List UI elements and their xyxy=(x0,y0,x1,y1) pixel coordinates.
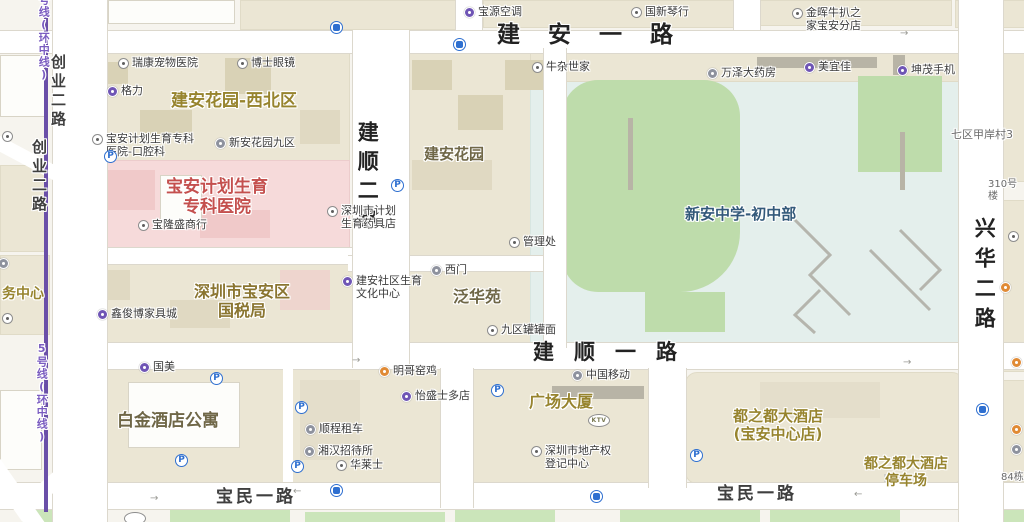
poi-label-yisheng-store[interactable]: 怡盛士多店 xyxy=(415,390,470,403)
city-block xyxy=(240,0,457,30)
green-strip xyxy=(770,508,900,522)
poi-label-jinhui-steak[interactable]: 金晖牛扒之 家宝安分店 xyxy=(806,7,861,33)
poi-label-xinan-huayuan-9[interactable]: 新安花园九区 xyxy=(229,137,295,150)
parking-icon[interactable]: P xyxy=(291,460,304,473)
west-gate-icon[interactable] xyxy=(431,265,442,276)
poi-label-west-gate[interactable]: 西门 xyxy=(445,264,467,277)
baoyuan-kongtiao-icon[interactable] xyxy=(464,7,475,18)
poi-label-ruikang-pet-hospital[interactable]: 瑞康宠物医院 xyxy=(132,57,198,70)
area-label-jianan-huayuan-xibei: 建安花园-西北区 xyxy=(171,91,297,111)
area-label-duzhidu-hotel: 都之都大酒店 (宝安中心店) xyxy=(733,407,823,443)
oneway-arrow: → xyxy=(352,356,360,366)
hualaishi-icon[interactable] xyxy=(336,460,347,471)
street-label-metro-label-top: 号线(环中线) xyxy=(37,0,50,82)
oneway-arrow: ← xyxy=(293,487,301,497)
edge-poi-icon[interactable] xyxy=(2,131,13,142)
dichanquan-center-icon[interactable] xyxy=(531,446,542,457)
ktv-badge: KTV xyxy=(588,414,610,427)
parking-icon[interactable]: P xyxy=(210,372,223,385)
building-shape xyxy=(900,132,905,190)
area-label-jianan-huayuan: 建安花园 xyxy=(424,145,484,163)
guoxin-qinhang-icon[interactable] xyxy=(631,7,642,18)
jiuqu-guanguanmian-icon[interactable] xyxy=(487,325,498,336)
poi-label-baolongsheng[interactable]: 宝隆盛商行 xyxy=(152,219,207,232)
street-label-jianshun-yilu: 建顺一路 xyxy=(533,340,697,365)
area-label-dong-84: 84栋 xyxy=(1001,472,1024,484)
area-label-baijin-hotel: 白金酒店公寓 xyxy=(117,411,219,431)
poi-label-baoyuan-kongtiao[interactable]: 宝源空调 xyxy=(478,6,522,19)
jihua-kouqiang-icon[interactable] xyxy=(92,134,103,145)
poi-label-geli[interactable]: 格力 xyxy=(121,85,143,98)
xianghan-hostel-icon[interactable] xyxy=(304,446,315,457)
geli-icon[interactable] xyxy=(107,86,118,97)
building-shape xyxy=(412,60,452,90)
guomei-icon[interactable] xyxy=(139,362,150,373)
niuza-shijia-icon[interactable] xyxy=(532,62,543,73)
guanlichu-icon[interactable] xyxy=(509,237,520,248)
area-label-fanhuayuan: 泛华苑 xyxy=(453,287,501,306)
parking-icon[interactable]: P xyxy=(175,454,188,467)
map-canvas[interactable]: 建安一路建顺一路宝民一路宝民一路建顺二路兴华二路创业二路创业二路号线(环中线)5… xyxy=(0,0,1024,522)
oneway-arrow: → xyxy=(900,29,908,39)
area-label-qiqu-jiaancun: 七区甲岸村3 xyxy=(951,128,1013,141)
building-shape xyxy=(300,110,340,144)
green-strip xyxy=(620,510,760,522)
green-strip xyxy=(455,508,555,522)
boshi-glasses-icon[interactable] xyxy=(237,58,248,69)
poi-label-shuncheng-zuche[interactable]: 顺程租车 xyxy=(319,423,363,436)
poi-label-guoxin-qinhang[interactable]: 国新琴行 xyxy=(645,6,689,19)
partial-badge xyxy=(124,512,146,522)
oneway-arrow: → xyxy=(903,358,911,368)
parking-icon[interactable]: P xyxy=(391,179,404,192)
parking-icon[interactable]: P xyxy=(104,150,117,163)
oneway-arrow: → xyxy=(150,494,158,504)
poi-label-boshi-glasses[interactable]: 博士眼镜 xyxy=(251,57,295,70)
poi-label-xinjunbo-furniture[interactable]: 鑫俊博家具城 xyxy=(111,308,177,321)
green-strip xyxy=(170,508,290,522)
building-shape xyxy=(628,118,633,190)
ruikang-pet-hospital-icon[interactable] xyxy=(118,58,129,69)
poi-label-guanlichu[interactable]: 管理处 xyxy=(523,236,556,249)
poi-label-jihua-kouqiang[interactable]: 宝安计划生育专科 医院-口腔科 xyxy=(106,133,194,159)
area-label-duzhidu-parking: 都之都大酒店 停车场 xyxy=(864,456,948,490)
poi-label-china-mobile[interactable]: 中国移动 xyxy=(586,369,630,382)
edge-poi-icon[interactable] xyxy=(1011,357,1022,368)
street-label-chuangye-erlu-a: 创业二路 xyxy=(49,54,67,130)
area-label-lou-310: 310号楼 xyxy=(988,179,1024,203)
poi-label-xianghan-hostel[interactable]: 湘汉招待所 xyxy=(318,445,373,458)
road-minor xyxy=(648,368,687,488)
parking-icon[interactable]: P xyxy=(491,384,504,397)
edge-poi-icon[interactable] xyxy=(1008,231,1019,242)
china-mobile-icon[interactable] xyxy=(572,370,583,381)
oneway-arrow: ← xyxy=(854,490,862,500)
edge-poi-icon[interactable] xyxy=(1000,282,1011,293)
street-label-metro-label-bottom: 5号线(环中线) xyxy=(35,342,48,444)
edge-poi-icon[interactable] xyxy=(1011,444,1022,455)
area-label-baoan-hospital: 宝安计划生育 专科医院 xyxy=(166,177,268,218)
bus-stop-icon[interactable] xyxy=(453,38,466,51)
poi-label-wanze-pharmacy[interactable]: 万泽大药房 xyxy=(721,67,776,80)
xinan-huayuan-9-icon[interactable] xyxy=(215,138,226,149)
poi-label-dichanquan-center[interactable]: 深圳市地产权 登记中心 xyxy=(545,445,611,471)
poi-label-kunmao-phone[interactable]: 坤茂手机 xyxy=(911,64,955,77)
wanze-pharmacy-icon[interactable] xyxy=(707,68,718,79)
poi-label-mingge-yaoji[interactable]: 明哥窑鸡 xyxy=(393,365,437,378)
bus-stop-icon[interactable] xyxy=(976,403,989,416)
mingge-yaoji-icon[interactable] xyxy=(379,366,390,377)
shuncheng-zuche-icon[interactable] xyxy=(305,424,316,435)
street-label-jianan-yilu: 建安一路 xyxy=(497,22,701,50)
kunmao-phone-icon[interactable] xyxy=(897,65,908,76)
street-label-baomin-yilu-west: 宝民一路 xyxy=(216,487,296,507)
parking-icon[interactable]: P xyxy=(295,401,308,414)
bus-stop-icon[interactable] xyxy=(330,484,343,497)
poi-label-shequ-culture-center[interactable]: 建安社区生育 文化中心 xyxy=(356,275,422,301)
edge-poi-icon[interactable] xyxy=(1011,424,1022,435)
road-minor xyxy=(733,0,761,30)
poi-label-hualaishi[interactable]: 华莱士 xyxy=(350,459,383,472)
street-label-xinghua-erlu: 兴华二路 xyxy=(971,217,996,337)
xinjunbo-furniture-icon[interactable] xyxy=(97,309,108,320)
area-label-guoshuiju: 深圳市宝安区 国税局 xyxy=(194,282,290,320)
area-label-wu-zhongxin: 务中心 xyxy=(2,286,44,303)
building-shape xyxy=(458,95,503,130)
poi-label-niuza-shijia[interactable]: 牛杂世家 xyxy=(546,61,590,74)
baolongsheng-icon[interactable] xyxy=(138,220,149,231)
poi-label-meiyijia[interactable]: 美宜佳 xyxy=(818,61,851,74)
road-school-west xyxy=(543,48,567,348)
street-label-baomin-yilu-east: 宝民一路 xyxy=(717,484,797,504)
meiyijia-icon[interactable] xyxy=(804,62,815,73)
edge-poi-icon[interactable] xyxy=(2,313,13,324)
area-label-guangchang-dasha: 广场大厦 xyxy=(529,392,593,411)
poi-label-jiuqu-guanguanmian[interactable]: 九区罐罐面 xyxy=(501,324,556,337)
jihua-yaojudian-icon[interactable] xyxy=(327,206,338,217)
area-label-xinan-middle-school: 新安中学-初中部 xyxy=(685,205,796,223)
shequ-culture-center-icon[interactable] xyxy=(342,276,353,287)
poi-label-jihua-yaojudian[interactable]: 深圳市计划 生育药具店 xyxy=(341,205,396,231)
building-shape xyxy=(108,0,235,24)
bus-stop-icon[interactable] xyxy=(330,21,343,34)
jinhui-steak-icon[interactable] xyxy=(792,8,803,19)
road-minor xyxy=(70,247,362,265)
building-shape xyxy=(412,160,492,190)
parking-icon[interactable]: P xyxy=(690,449,703,462)
green-strip xyxy=(305,512,445,522)
street-label-chuangye-erlu-b: 创业二路 xyxy=(30,139,48,215)
poi-label-guomei[interactable]: 国美 xyxy=(153,361,175,374)
yisheng-store-icon[interactable] xyxy=(401,391,412,402)
bus-stop-icon[interactable] xyxy=(590,490,603,503)
